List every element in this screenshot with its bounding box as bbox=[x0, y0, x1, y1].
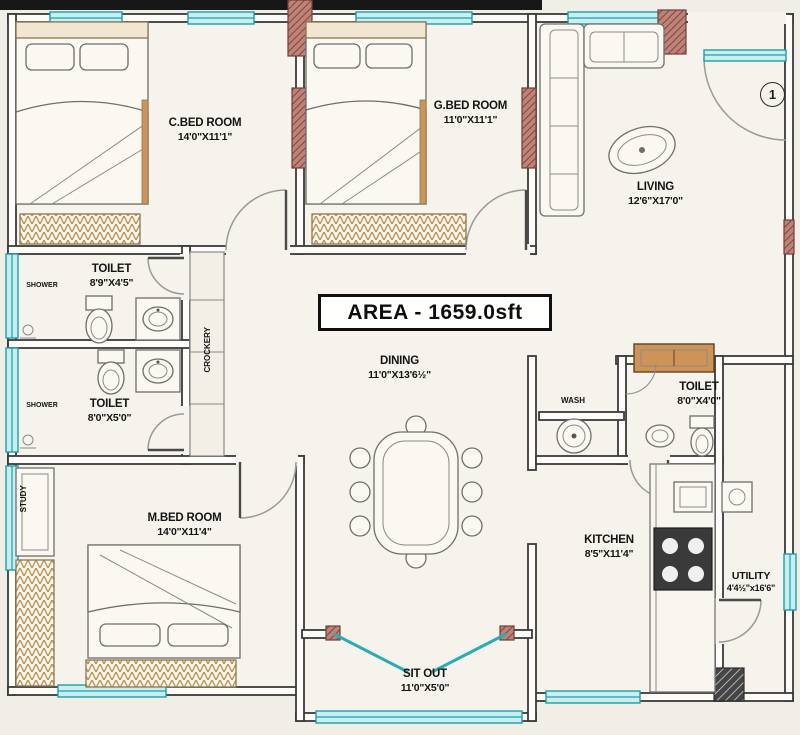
room-label-dining: DINING 11'0"X13'6½" bbox=[342, 355, 457, 381]
wardrobe-icon-m-bedroom-side bbox=[16, 560, 54, 686]
tv-unit-icon bbox=[634, 344, 714, 372]
floor-plan: C.BED ROOM 14'0"X11'1" G.BED ROOM 11'0"X… bbox=[0, 0, 800, 735]
area-label: AREA - 1659.0sft bbox=[318, 294, 552, 331]
window-icon bbox=[546, 691, 640, 703]
window-icon bbox=[188, 12, 254, 24]
bed-icon-c-bedroom bbox=[16, 22, 148, 204]
wardrobe-icon-m-bedroom bbox=[86, 660, 236, 687]
utility-sink-icon bbox=[722, 482, 752, 512]
wardrobe-icon-g-bedroom bbox=[312, 214, 466, 244]
wc-icon-toilet-mid bbox=[98, 350, 124, 394]
label-shower-mid: SHOWER bbox=[16, 402, 68, 410]
washbasin-icon-toilet-right bbox=[646, 425, 674, 447]
washbasin-icon-toilet-mid bbox=[136, 350, 180, 392]
room-label-sit-out: SIT OUT 11'0"X5'0" bbox=[376, 668, 474, 694]
room-label-toilet-mid: TOILET 8'0"X5'0" bbox=[62, 398, 157, 424]
wc-icon-toilet-right bbox=[690, 416, 714, 456]
window-icon bbox=[316, 711, 522, 723]
corner-pillar bbox=[714, 668, 744, 701]
room-label-kitchen: KITCHEN 8'5"X11'4" bbox=[560, 534, 658, 560]
ventilator-icon bbox=[6, 254, 18, 338]
room-label-utility: UTILITY 4'4½"x16'6" bbox=[718, 570, 784, 593]
entrance-marker: 1 bbox=[760, 82, 785, 107]
room-label-c-bedroom: C.BED ROOM 14'0"X11'1" bbox=[130, 117, 280, 143]
room-label-m-bedroom: M.BED ROOM 14'0"X11'4" bbox=[112, 512, 257, 538]
window-icon bbox=[568, 12, 660, 24]
top-border-strip bbox=[0, 0, 542, 10]
wc-icon-toilet-top bbox=[86, 296, 112, 343]
label-wash: WASH bbox=[550, 396, 596, 406]
label-study: STUDY bbox=[19, 469, 29, 529]
kitchen-sink-icon bbox=[674, 482, 712, 512]
wardrobe-icon-c-bedroom bbox=[20, 214, 140, 244]
washbasin-icon-toilet-top bbox=[136, 298, 180, 340]
room-label-living: LIVING 12'6"X17'0" bbox=[598, 181, 713, 207]
wash-basin-icon bbox=[557, 419, 591, 453]
room-label-g-bedroom: G.BED ROOM 11'0"X11'1" bbox=[398, 100, 543, 126]
label-shower-top: SHOWER bbox=[16, 282, 68, 290]
bed-icon-m-bedroom bbox=[88, 545, 240, 658]
stove-icon bbox=[654, 528, 712, 590]
ventilator-icon bbox=[6, 348, 18, 452]
room-label-toilet-top: TOILET 8'9"X4'5" bbox=[64, 263, 159, 289]
label-crockery: CROCKERY bbox=[203, 313, 213, 387]
room-label-toilet-right: TOILET 8'0"X4'0" bbox=[653, 381, 745, 407]
window-icon bbox=[784, 554, 796, 610]
